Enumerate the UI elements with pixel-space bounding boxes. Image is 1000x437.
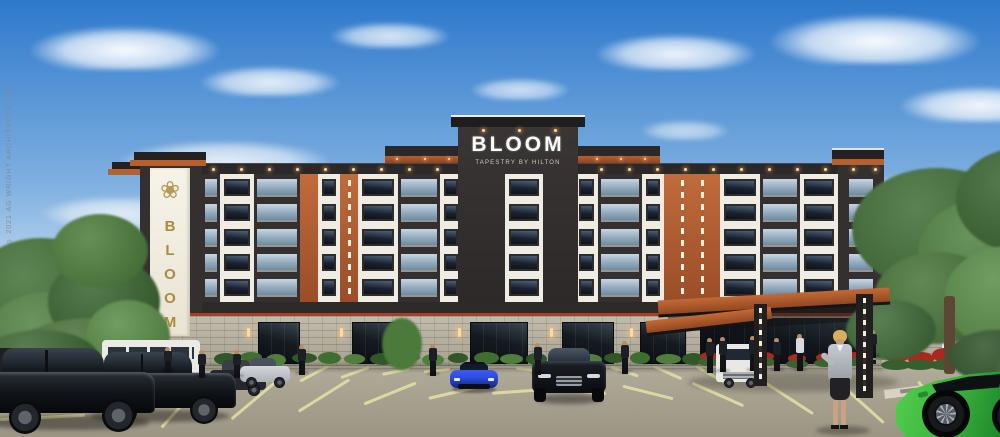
person-shadow [793,368,807,371]
car-pillar [45,350,48,374]
facade-strip [398,174,440,302]
facade-strip [340,174,358,302]
soffit-light [852,168,855,171]
hotel-window [601,204,639,220]
car-wheel [274,377,285,388]
hotel-window [322,254,336,271]
hotel-name-sign: BLOOM [458,133,578,157]
soffit-light [628,168,631,171]
person [197,350,207,376]
soffit-light [212,168,215,171]
hotel-window [804,254,834,271]
soffit-light [268,168,271,171]
cloud [330,22,450,48]
sign-tower-window-strip [505,174,543,302]
hotel-window [804,229,834,246]
facade-strip [642,174,664,302]
main-sign-tower-roof [451,115,585,127]
hotel-window [646,229,660,246]
person [163,347,173,371]
person-torso [773,342,781,355]
hotel-window [205,254,217,270]
soffit-light [600,168,603,171]
soffit-light [396,158,398,160]
person-torso [429,348,437,361]
facade-light-strip [681,180,684,296]
hotel-window [646,204,660,221]
canopy-pillar [754,304,767,386]
hotel-window [724,279,756,296]
car-wheel [534,388,546,402]
hotel-window [362,229,394,246]
hotel-window [601,279,639,295]
hotel-window [224,179,250,196]
woman-shoe [831,425,839,429]
hotel-window [724,229,756,246]
hotel-window [322,279,336,296]
facade-light-strip [701,180,704,296]
hotel-window [322,229,336,246]
cloud [470,78,570,100]
car-headlight [538,374,551,378]
soffit-light [380,168,383,171]
person-shadow [770,368,784,371]
tree-foliage-left [52,214,148,288]
soffit-light [874,168,877,171]
soffit-light [824,168,827,171]
green-sports-car [896,370,1000,437]
facade-strip [598,174,642,302]
hotel-window [509,179,539,196]
person [620,341,630,372]
car-headlight [454,378,460,381]
hotel-window [257,204,297,220]
car-wheel [922,390,970,437]
silver-car [240,358,290,388]
hotel-window [601,229,639,245]
person-torso [706,342,714,356]
facade-strip [202,174,220,302]
hotel-window [509,204,539,221]
hotel-exterior-rendering: © 2021 AG WRIGHT ARCHITECTS INC. BLOOM T… [0,0,1000,437]
hotel-window [579,229,594,246]
shrub [318,352,341,364]
woman-leg [841,400,846,426]
hotel-window [257,229,297,245]
person-torso [621,345,629,358]
hotel-window [763,179,797,195]
hotel-window [763,254,797,270]
car-headlight [587,374,600,378]
person-shadow [295,371,309,374]
person [297,345,307,373]
hotel-window [322,204,336,221]
car-wheel [190,396,218,424]
hotel-window [401,179,437,195]
hotel-window [724,204,756,221]
wall-sconce-light [340,328,343,337]
car-wheel [724,378,734,388]
flower-logo-icon: ❀ [150,176,190,205]
car-wheel [9,401,42,434]
hotel-window [257,279,297,295]
cloud [770,14,980,64]
hotel-brand-sign: TAPESTRY BY HILTON [458,160,578,166]
person [232,350,242,376]
facade-strip [800,174,838,302]
person-shadow [426,372,440,375]
facade-strip [254,174,300,302]
hotel-window [579,279,594,296]
soffit-light [768,168,771,171]
hotel-window [224,279,250,296]
hotel-window [444,254,458,271]
person [428,344,438,374]
person [705,338,715,372]
hotel-window [401,279,437,295]
hotel-window [509,254,539,271]
hotel-window [322,179,336,196]
car-wheel [592,388,604,402]
person-shadow [703,370,717,373]
hotel-window [444,204,458,221]
person-torso [198,354,206,365]
hotel-window [362,179,394,196]
hotel-window [601,179,639,195]
person-shadow [161,369,175,372]
facade-strip [300,174,318,302]
facade-strip [220,174,254,302]
person [772,338,782,370]
car-grille [556,376,582,386]
shrub [630,352,650,364]
soffit-light [352,168,355,171]
hotel-window [401,254,437,270]
hotel-window [444,179,458,196]
soffit-light [324,168,327,171]
hotel-window [362,279,394,296]
person-torso [298,349,306,361]
soffit-light [424,158,426,160]
pillar-light-strip [759,308,762,380]
person-shadow [618,370,632,373]
sapling-tree [382,318,422,370]
person-torso [233,354,241,365]
soffit-light [596,158,598,160]
hotel-window [205,229,217,245]
hotel-window [579,204,594,221]
hotel-window [804,204,834,221]
soffit-light [712,168,715,171]
soffit-light [482,129,485,132]
soffit-light [518,129,521,132]
soffit-light [436,168,439,171]
wall-sconce-light [550,328,553,337]
soffit-light [240,168,243,171]
hotel-window [724,254,756,271]
hotel-window [224,254,250,271]
facade-strip [760,174,800,302]
soffit-light [408,168,411,171]
person-shadow [531,371,545,374]
shrub [344,354,365,364]
black-sedan [0,348,155,435]
hotel-window [257,179,297,195]
hotel-window [763,204,797,220]
hotel-window [579,179,594,196]
woman-shoe [840,425,848,429]
hotel-window [646,254,660,271]
copyright-text: © 2021 AG WRIGHT ARCHITECTS INC. [6,84,13,245]
hotel-window [646,179,660,196]
soffit-light [684,168,687,171]
blue-sports-car [450,362,498,392]
hotel-window [509,279,539,296]
facade-strip [575,174,598,302]
hotel-window [205,204,217,220]
person-torso [796,338,804,353]
cloud [200,66,340,96]
car-wheel [246,377,257,388]
soffit-light [740,168,743,171]
hotel-window [362,204,394,221]
hotel-window [579,254,594,271]
person-torso [534,347,542,360]
person [718,337,728,371]
hotel-window [205,279,217,295]
soffit-light [554,129,557,132]
soffit-light [656,168,659,171]
hotel-window [444,229,458,246]
facade-strip [358,174,398,302]
cloud [640,120,730,140]
hotel-window [401,204,437,220]
hotel-window [724,179,756,196]
person-torso [719,341,727,355]
car-headlight [488,378,494,381]
left-roof-rust [130,160,206,166]
hotel-window [257,254,297,270]
soffit-light [296,168,299,171]
woman-traveler [818,330,864,434]
cloud [900,86,1000,122]
person-shadow [195,374,209,377]
black-sedan-front [532,348,606,404]
person [795,334,805,370]
car-intake [458,384,490,389]
woman-leg [833,400,838,426]
hotel-window [444,279,458,296]
cloud [596,34,756,70]
soffit-light [448,158,450,160]
hotel-window [224,229,250,246]
hotel-window [401,229,437,245]
hotel-window [646,279,660,296]
person-shadow [716,369,730,372]
facade-strip [664,174,720,302]
car-wheel [102,399,135,432]
left-awning-rust [108,169,142,175]
facade-light-strip [348,180,351,296]
wall-sconce-light [247,328,250,337]
hotel-window [763,229,797,245]
hotel-window [224,204,250,221]
shrub [500,354,523,364]
soffit-light [644,158,646,160]
hotel-window [509,229,539,246]
wall-sconce-light [630,328,633,337]
hotel-window [362,254,394,271]
person [533,343,543,373]
right-roof-rust [832,159,884,165]
shrub [656,354,681,364]
person-shadow [230,374,244,377]
hotel-window [601,254,639,270]
soffit-light [796,168,799,171]
wall-sconce-light [458,328,461,337]
hotel-window [205,179,217,195]
facade-strip [318,174,340,302]
woman-skirt [830,378,850,400]
facade-strip [720,174,760,302]
car-hub [936,404,956,424]
cloud [30,26,220,70]
soffit-light [620,158,622,160]
person-torso [164,351,172,361]
hotel-window [804,179,834,196]
